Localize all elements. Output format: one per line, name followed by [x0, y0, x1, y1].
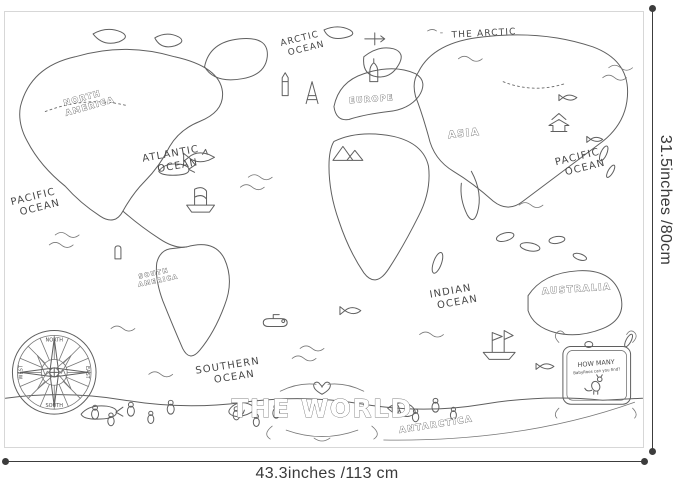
- world-map-line-art: NORTH SOUTH EAST WEST ARCTIC OCEAN ATLAN…: [5, 12, 643, 447]
- title-banner: THE WORLD: [229, 382, 415, 441]
- ocean-label-atlantic: ATLANTIC OCEAN: [141, 144, 202, 178]
- route-dashed-line: [503, 82, 565, 89]
- ship-icon: [483, 331, 515, 360]
- width-dimension-line: [5, 461, 645, 462]
- dimension-dot: [649, 5, 656, 12]
- ocean-label-arctic: ARCTIC OCEAN: [279, 29, 325, 60]
- ocean-label-indian: INDIAN OCEAN: [429, 282, 479, 313]
- region-label-europe: EUROPE: [349, 93, 395, 105]
- dimension-dot: [649, 448, 656, 455]
- compass-north-label: NORTH: [45, 337, 63, 343]
- dimension-dot: [2, 458, 9, 465]
- compass-west-label: WEST: [18, 364, 24, 379]
- region-label-south-america: SOUTH AMERICA: [136, 266, 179, 289]
- submarine-icon: [263, 315, 287, 327]
- banner-bottom-flourish: [267, 426, 378, 441]
- ship-icon: [187, 188, 215, 212]
- arctic-squiggle: [428, 29, 443, 32]
- ocean-label-pacific-east: PACIFIC OCEAN: [554, 146, 607, 180]
- eiffel-tower-icon: [306, 82, 318, 104]
- world-map-poster-product-image: NORTH SOUTH EAST WEST ARCTIC OCEAN ATLAN…: [0, 0, 679, 487]
- airplane-icon: [365, 33, 385, 45]
- callout-corner-curls: [555, 331, 636, 418]
- poster-sheet: NORTH SOUTH EAST WEST ARCTIC OCEAN ATLAN…: [4, 11, 644, 448]
- clock-tower-icon: [282, 73, 288, 96]
- fish-icon: [340, 307, 361, 315]
- whale-icon: [81, 406, 123, 419]
- compass-east-label: EAST: [84, 366, 90, 380]
- moai-icon: [115, 246, 121, 259]
- continent-outlines: [5, 27, 642, 440]
- width-dimension-label: 43.3inches /113 cm: [0, 465, 654, 483]
- fish-icon: [559, 95, 577, 101]
- fish-icon: [587, 136, 603, 142]
- region-label-north-america: NORTH AMERICA: [61, 85, 115, 117]
- dimension-dot: [641, 458, 648, 465]
- region-label-australia: AUSTRALIA: [542, 282, 612, 297]
- compass-rose-icon: NORTH SOUTH EAST WEST: [12, 331, 96, 415]
- height-dimension-line: [652, 8, 653, 452]
- region-label-the-arctic: THE ARCTIC: [450, 27, 517, 40]
- kangaroo-icon: [585, 375, 602, 394]
- pagoda-icon: [549, 114, 569, 132]
- fish-icon: [536, 363, 554, 369]
- callout-frame: HOW MANY BabyRoos can you find?: [555, 331, 636, 418]
- height-dimension-label: 31.5inches /80cm: [656, 135, 674, 265]
- ocean-label-pacific-west: PACIFIC OCEAN: [10, 186, 62, 220]
- pyramids-icon: [333, 146, 363, 160]
- compass-south-label: SOUTH: [45, 403, 63, 409]
- region-label-asia: ASIA: [447, 127, 480, 141]
- poster-title: THE WORLD: [231, 394, 412, 423]
- ocean-label-southern: SOUTHERN OCEAN: [195, 356, 263, 389]
